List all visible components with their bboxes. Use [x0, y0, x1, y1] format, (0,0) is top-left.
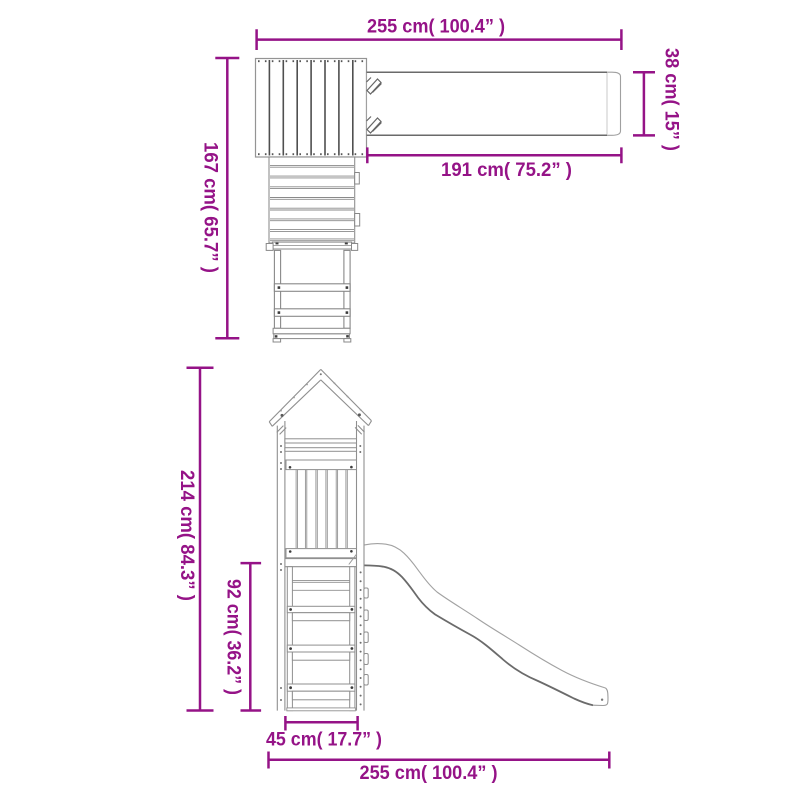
svg-text:167 cm( 65.7” ): 167 cm( 65.7” ) [200, 142, 221, 273]
svg-text:255 cm( 100.4” ): 255 cm( 100.4” ) [360, 763, 498, 784]
svg-text:45 cm( 17.7” ): 45 cm( 17.7” ) [266, 729, 382, 750]
svg-text:191 cm( 75.2” ): 191 cm( 75.2” ) [441, 160, 572, 181]
svg-text:92 cm( 36.2” ): 92 cm( 36.2” ) [223, 579, 244, 695]
svg-text:214 cm( 84.3” ): 214 cm( 84.3” ) [176, 470, 197, 601]
svg-text:38 cm( 15” ): 38 cm( 15” ) [661, 48, 682, 151]
svg-text:255 cm( 100.4” ): 255 cm( 100.4” ) [367, 17, 505, 38]
